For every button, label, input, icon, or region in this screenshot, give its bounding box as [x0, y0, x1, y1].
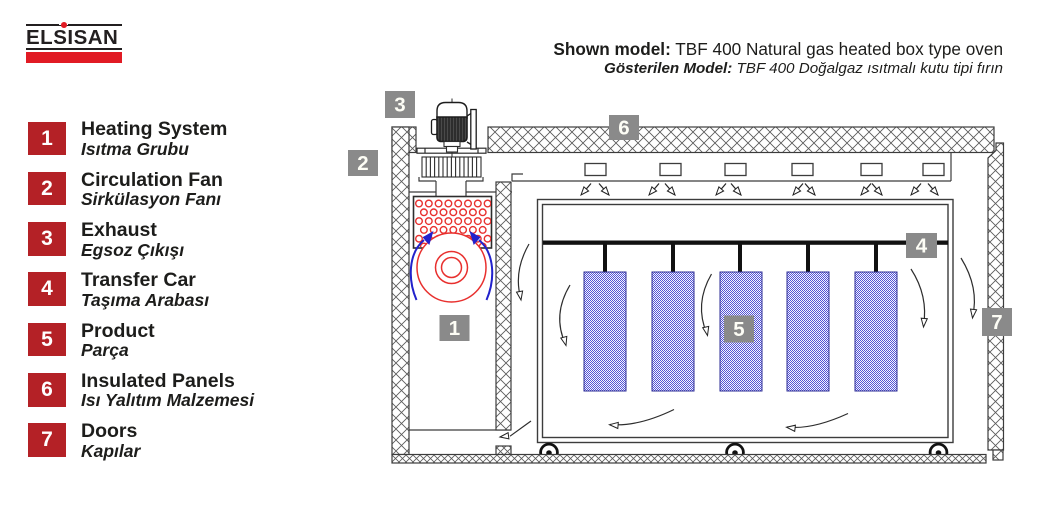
svg-text:6: 6 [618, 117, 629, 140]
svg-text:5: 5 [733, 318, 744, 341]
svg-text:1: 1 [449, 317, 460, 340]
svg-text:3: 3 [394, 94, 405, 117]
svg-text:7: 7 [991, 311, 1002, 334]
svg-text:2: 2 [357, 152, 368, 175]
svg-text:4: 4 [916, 235, 928, 258]
